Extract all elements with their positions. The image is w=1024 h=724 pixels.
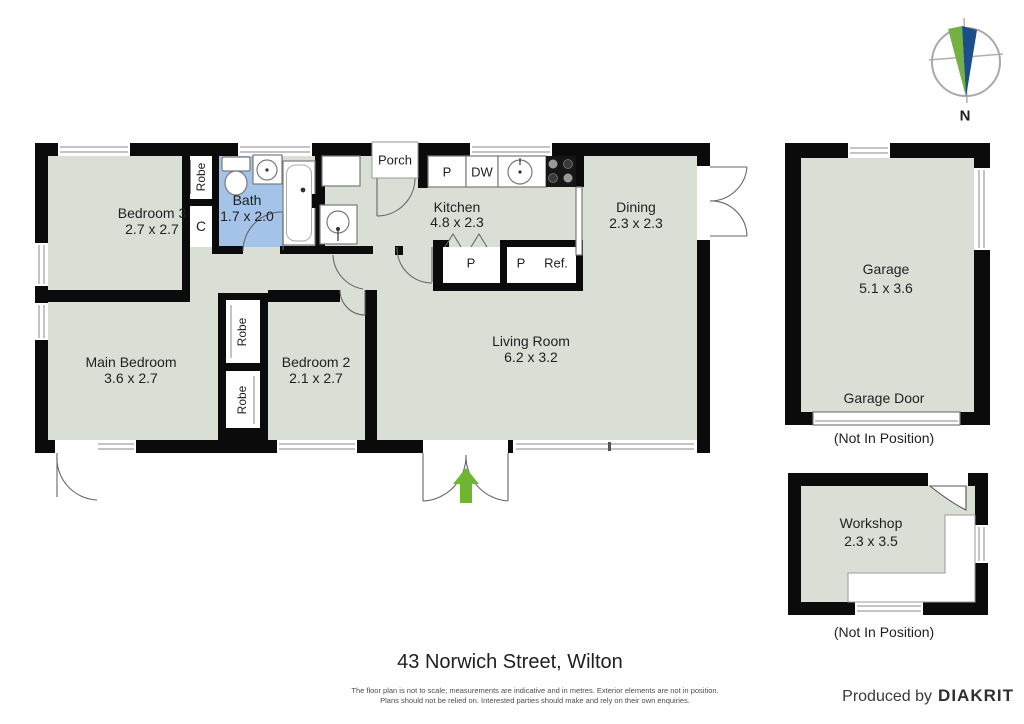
dishwasher-label: DW <box>471 165 493 180</box>
burner <box>564 174 573 183</box>
exterior-door-swing <box>57 455 97 500</box>
wall-bedroom2-right <box>365 290 377 440</box>
garage-door-label: Garage Door <box>844 390 925 406</box>
basin-tap <box>265 168 268 171</box>
produced-by-text: Produced by <box>842 688 932 705</box>
bedroom3-dims: 2.7 x 2.7 <box>125 221 179 237</box>
closet-label: C <box>196 218 206 234</box>
dining-dims: 2.3 x 2.3 <box>609 215 663 231</box>
window-garage-right <box>974 168 990 250</box>
window-garage-top <box>848 143 890 158</box>
burner <box>564 160 573 169</box>
main-bedroom-label: Main Bedroom <box>85 354 176 370</box>
kitchen-divider-panel <box>576 187 582 255</box>
entry-arrow <box>453 468 479 503</box>
bedroom3-label: Bedroom 3 <box>118 205 187 221</box>
footer: 43 Norwich Street, Wilton The floor plan… <box>351 651 1014 705</box>
sink-tap <box>518 170 521 173</box>
french-door-swing <box>710 201 747 236</box>
bathtub-faucet <box>301 188 306 193</box>
bedroom2-dims: 2.1 x 2.7 <box>289 370 343 386</box>
opening-workshop-door <box>928 473 968 486</box>
workshop-wall-left <box>788 473 801 615</box>
pantry-label: P <box>443 165 452 180</box>
window-bedroom2-bottom <box>277 440 357 453</box>
kitchen-label: Kitchen <box>434 199 481 215</box>
opening-french-doors <box>697 166 710 240</box>
garage-label: Garage <box>863 261 910 277</box>
window-living-bottom <box>513 440 697 453</box>
window-mainbed-left <box>35 303 48 340</box>
robe-label: Robe <box>194 162 208 191</box>
north-label: N <box>960 108 971 125</box>
window-bedroom3-top <box>58 143 130 156</box>
disclaimer-line2: Plans should not be relied on. Intereste… <box>380 696 690 705</box>
shower-mixer <box>312 194 318 208</box>
window-bath-top <box>238 143 312 156</box>
workshop-dims: 2.3 x 3.5 <box>844 533 898 549</box>
wall-bench-left-stub <box>418 156 428 188</box>
kitchen-dims: 4.8 x 2.3 <box>430 214 484 230</box>
wall-cooktop-right-stub <box>576 156 584 187</box>
floorplan-page: Bedroom 3 2.7 x 2.7 Robe C Bath 1.7 x 2.… <box>0 0 1024 724</box>
floorplan-canvas: Bedroom 3 2.7 x 2.7 Robe C Bath 1.7 x 2.… <box>0 0 1024 724</box>
burner <box>549 174 558 183</box>
living-label: Living Room <box>492 333 570 349</box>
robe-label: Robe <box>235 385 249 414</box>
laundry-bench <box>322 156 360 186</box>
wall-pantry-bottom <box>433 283 583 291</box>
not-in-position-label: (Not In Position) <box>834 624 934 640</box>
robe-label: Robe <box>235 317 249 346</box>
trough-tap <box>336 227 340 231</box>
garage-wall-left <box>785 143 801 425</box>
wall-fridge-top <box>500 240 583 247</box>
bath-dims: 1.7 x 2.0 <box>220 208 274 224</box>
garage-door-panel <box>813 412 960 425</box>
workshop-label: Workshop <box>840 515 903 531</box>
window-workshop-bottom <box>855 602 923 615</box>
garage-dims: 5.1 x 3.6 <box>859 280 913 296</box>
main-bedroom-dims: 3.6 x 2.7 <box>104 370 158 386</box>
disclaimer-line1: The floor plan is not to scale; measurem… <box>351 686 718 695</box>
burner <box>549 160 558 169</box>
window-workshop-right <box>975 525 988 563</box>
opening-front-door <box>423 440 508 453</box>
wall-bedroom2-top <box>268 290 340 302</box>
wall-hall-stub <box>395 246 403 255</box>
dining-label: Dining <box>616 199 656 215</box>
pantry-label: P <box>467 256 476 271</box>
wall-mainbed-top <box>48 290 190 302</box>
window-kitchen-top <box>470 143 552 156</box>
pantry-label: P <box>517 256 526 271</box>
wall-bedroom3-right <box>182 156 190 302</box>
address-title: 43 Norwich Street, Wilton <box>397 651 623 673</box>
bath-label: Bath <box>233 192 262 208</box>
window-mainbed-bottom <box>96 440 136 453</box>
wall-pantry-divider <box>500 240 507 291</box>
fridge-label: Ref. <box>544 256 568 271</box>
diakrit-logo: DIAKRIT <box>938 686 1014 705</box>
wall-closet-sep <box>182 199 219 206</box>
wall-bath-bottom <box>212 246 243 254</box>
not-in-position-label: (Not In Position) <box>834 430 934 446</box>
french-door-swing <box>710 167 747 201</box>
compass: N <box>929 18 1003 125</box>
wall-wet-bottom <box>280 246 373 254</box>
bedroom2-label: Bedroom 2 <box>282 354 351 370</box>
bathtub <box>283 161 315 245</box>
living-dims: 6.2 x 3.2 <box>504 349 558 365</box>
window-bedroom3-left <box>35 243 48 286</box>
toilet-cistern <box>222 157 250 171</box>
opening-mainbed-exterior <box>55 440 97 453</box>
house-wall-left <box>35 143 48 453</box>
porch-label: Porch <box>378 153 412 168</box>
